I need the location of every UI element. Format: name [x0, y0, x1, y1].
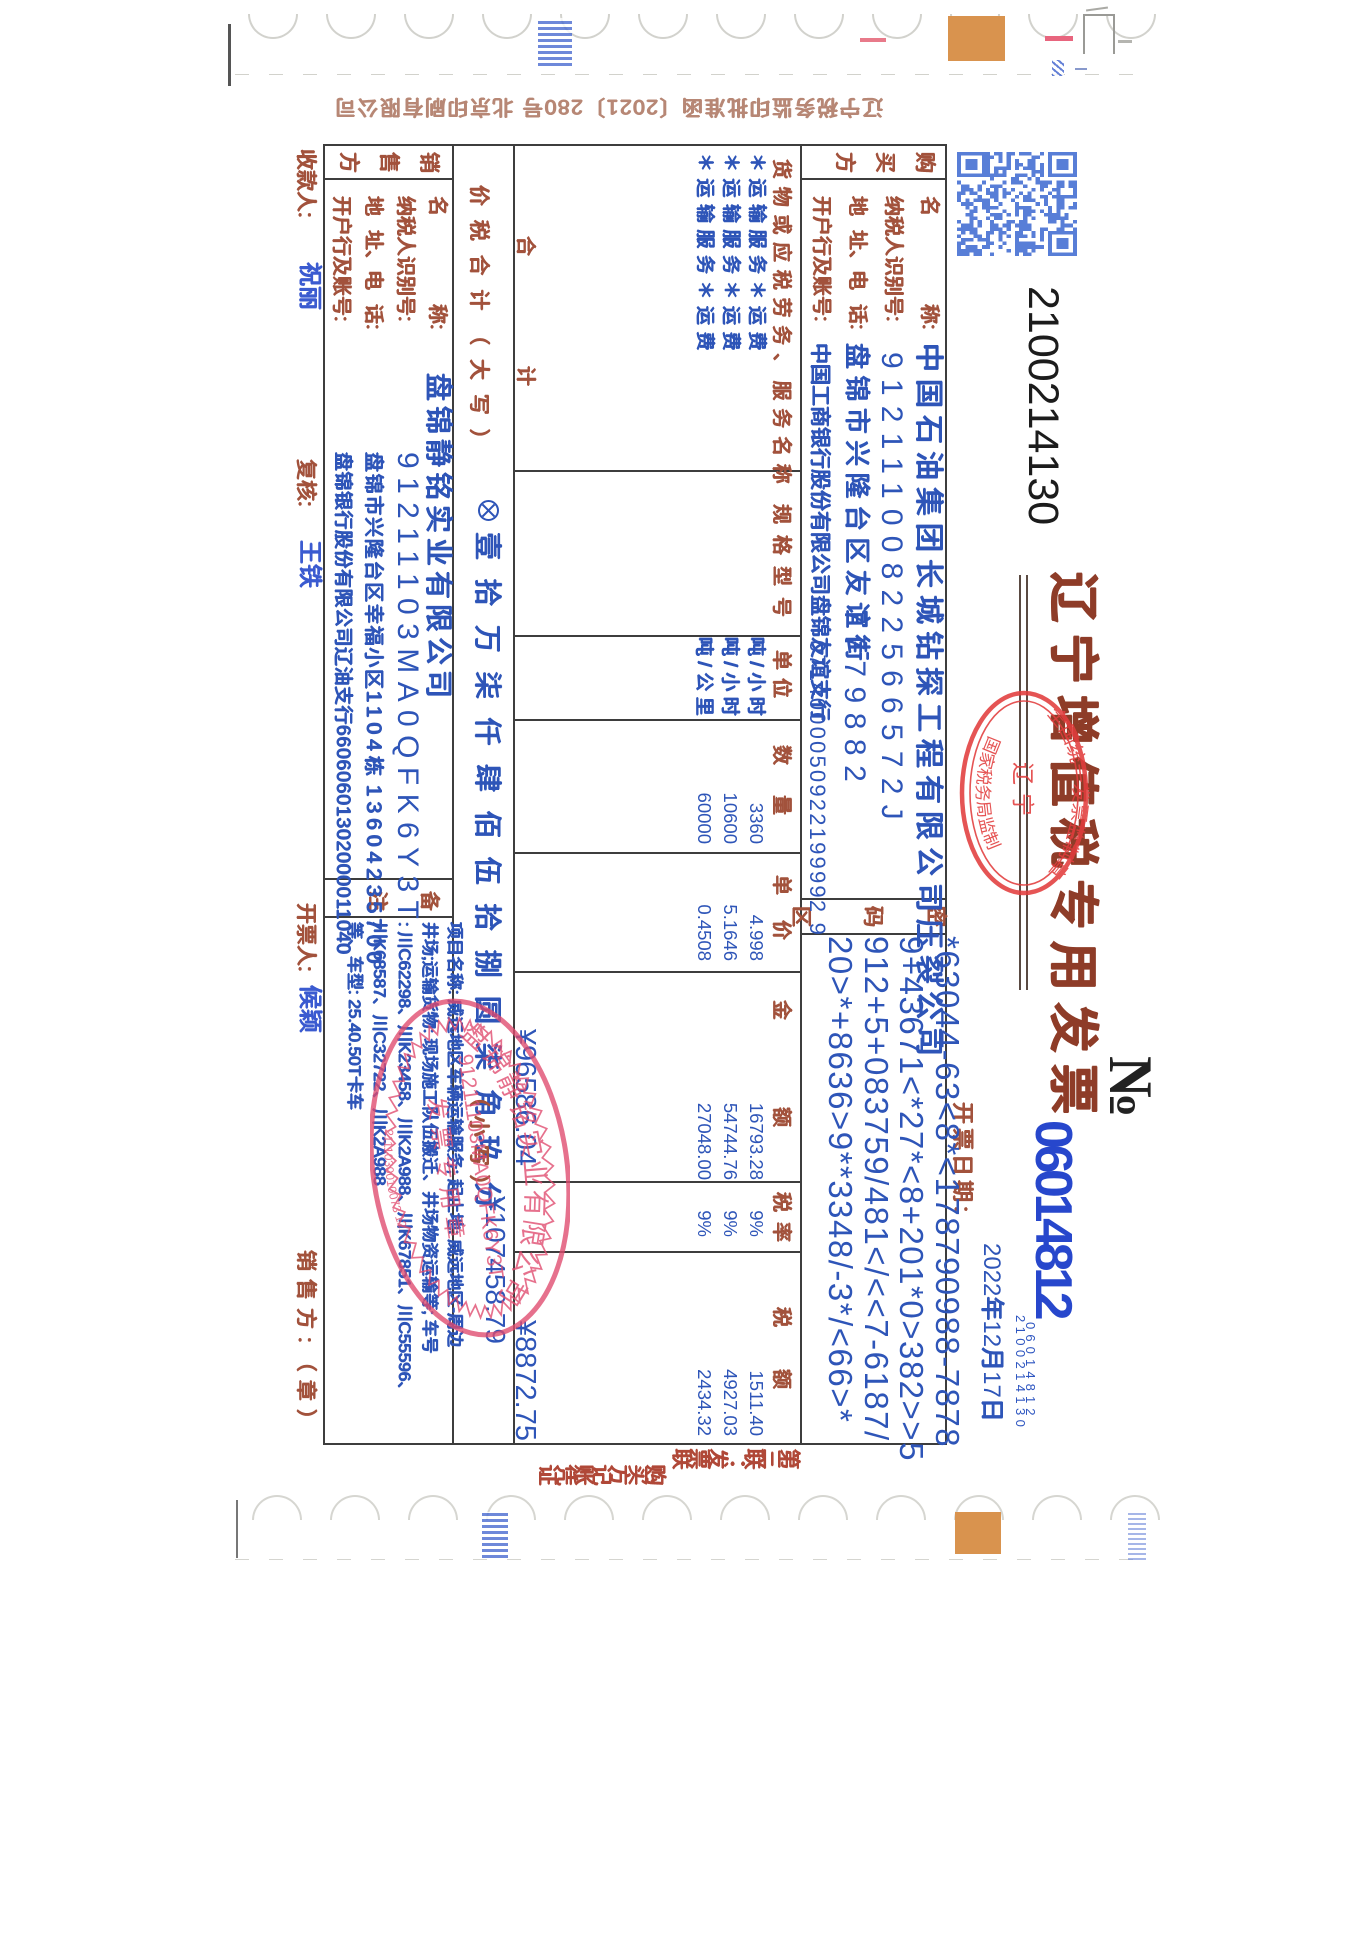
svg-text:国家税务局监制: 国家税务局监制: [973, 734, 1003, 853]
svg-text:辽宁: 辽宁: [1010, 762, 1036, 824]
svg-text:全国统一发票监制章: 全国统一发票监制章: [1043, 703, 1091, 883]
